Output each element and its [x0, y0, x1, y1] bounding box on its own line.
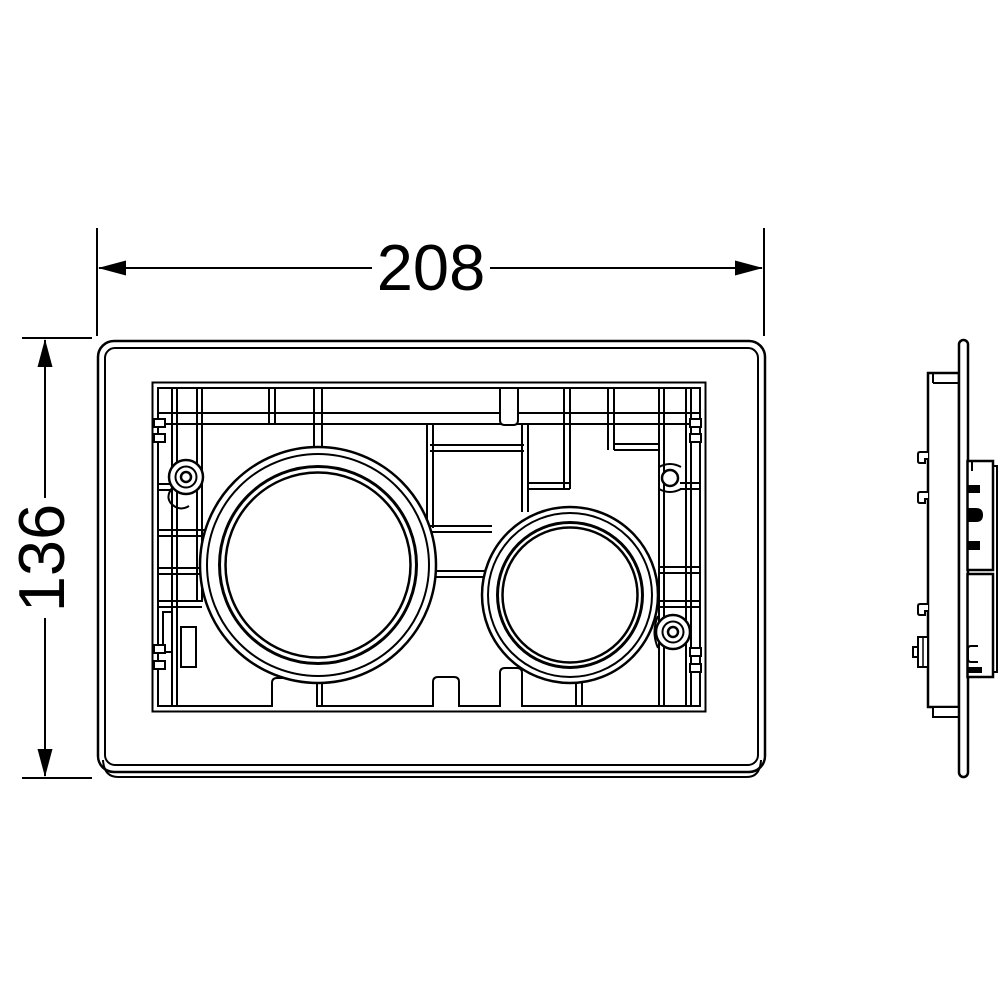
screw-boss-right — [655, 615, 691, 649]
flush-plate-drawing: 208 136 — [0, 0, 1000, 1000]
large-button-circle — [200, 447, 436, 683]
side-mounting-body — [928, 373, 959, 717]
side-clips — [913, 452, 928, 667]
side-button-blocks — [968, 461, 998, 677]
side-latch-tab-1 — [968, 485, 980, 493]
side-lower-nub — [913, 647, 918, 657]
side-latch-tab-4 — [968, 667, 982, 673]
small-button-circle — [482, 507, 658, 683]
drawing-canvas: 208 136 — [0, 0, 1000, 1000]
arrowhead-down — [38, 749, 53, 777]
width-dimension: 208 — [97, 228, 764, 336]
arrowhead-right — [735, 261, 763, 276]
bottom-mid-stub — [433, 677, 459, 707]
side-latch-tab-2 — [968, 508, 983, 522]
top-center-stub — [500, 389, 518, 425]
side-latch-tab-3 — [968, 541, 980, 550]
arrowhead-left — [98, 261, 126, 276]
width-value-label: 208 — [377, 231, 485, 304]
height-dimension: 136 — [5, 338, 92, 778]
bottom-center-stub — [500, 668, 522, 707]
side-view — [913, 340, 997, 777]
arrowhead-up — [38, 339, 53, 367]
height-value-label: 136 — [5, 504, 78, 612]
front-view — [98, 341, 765, 777]
